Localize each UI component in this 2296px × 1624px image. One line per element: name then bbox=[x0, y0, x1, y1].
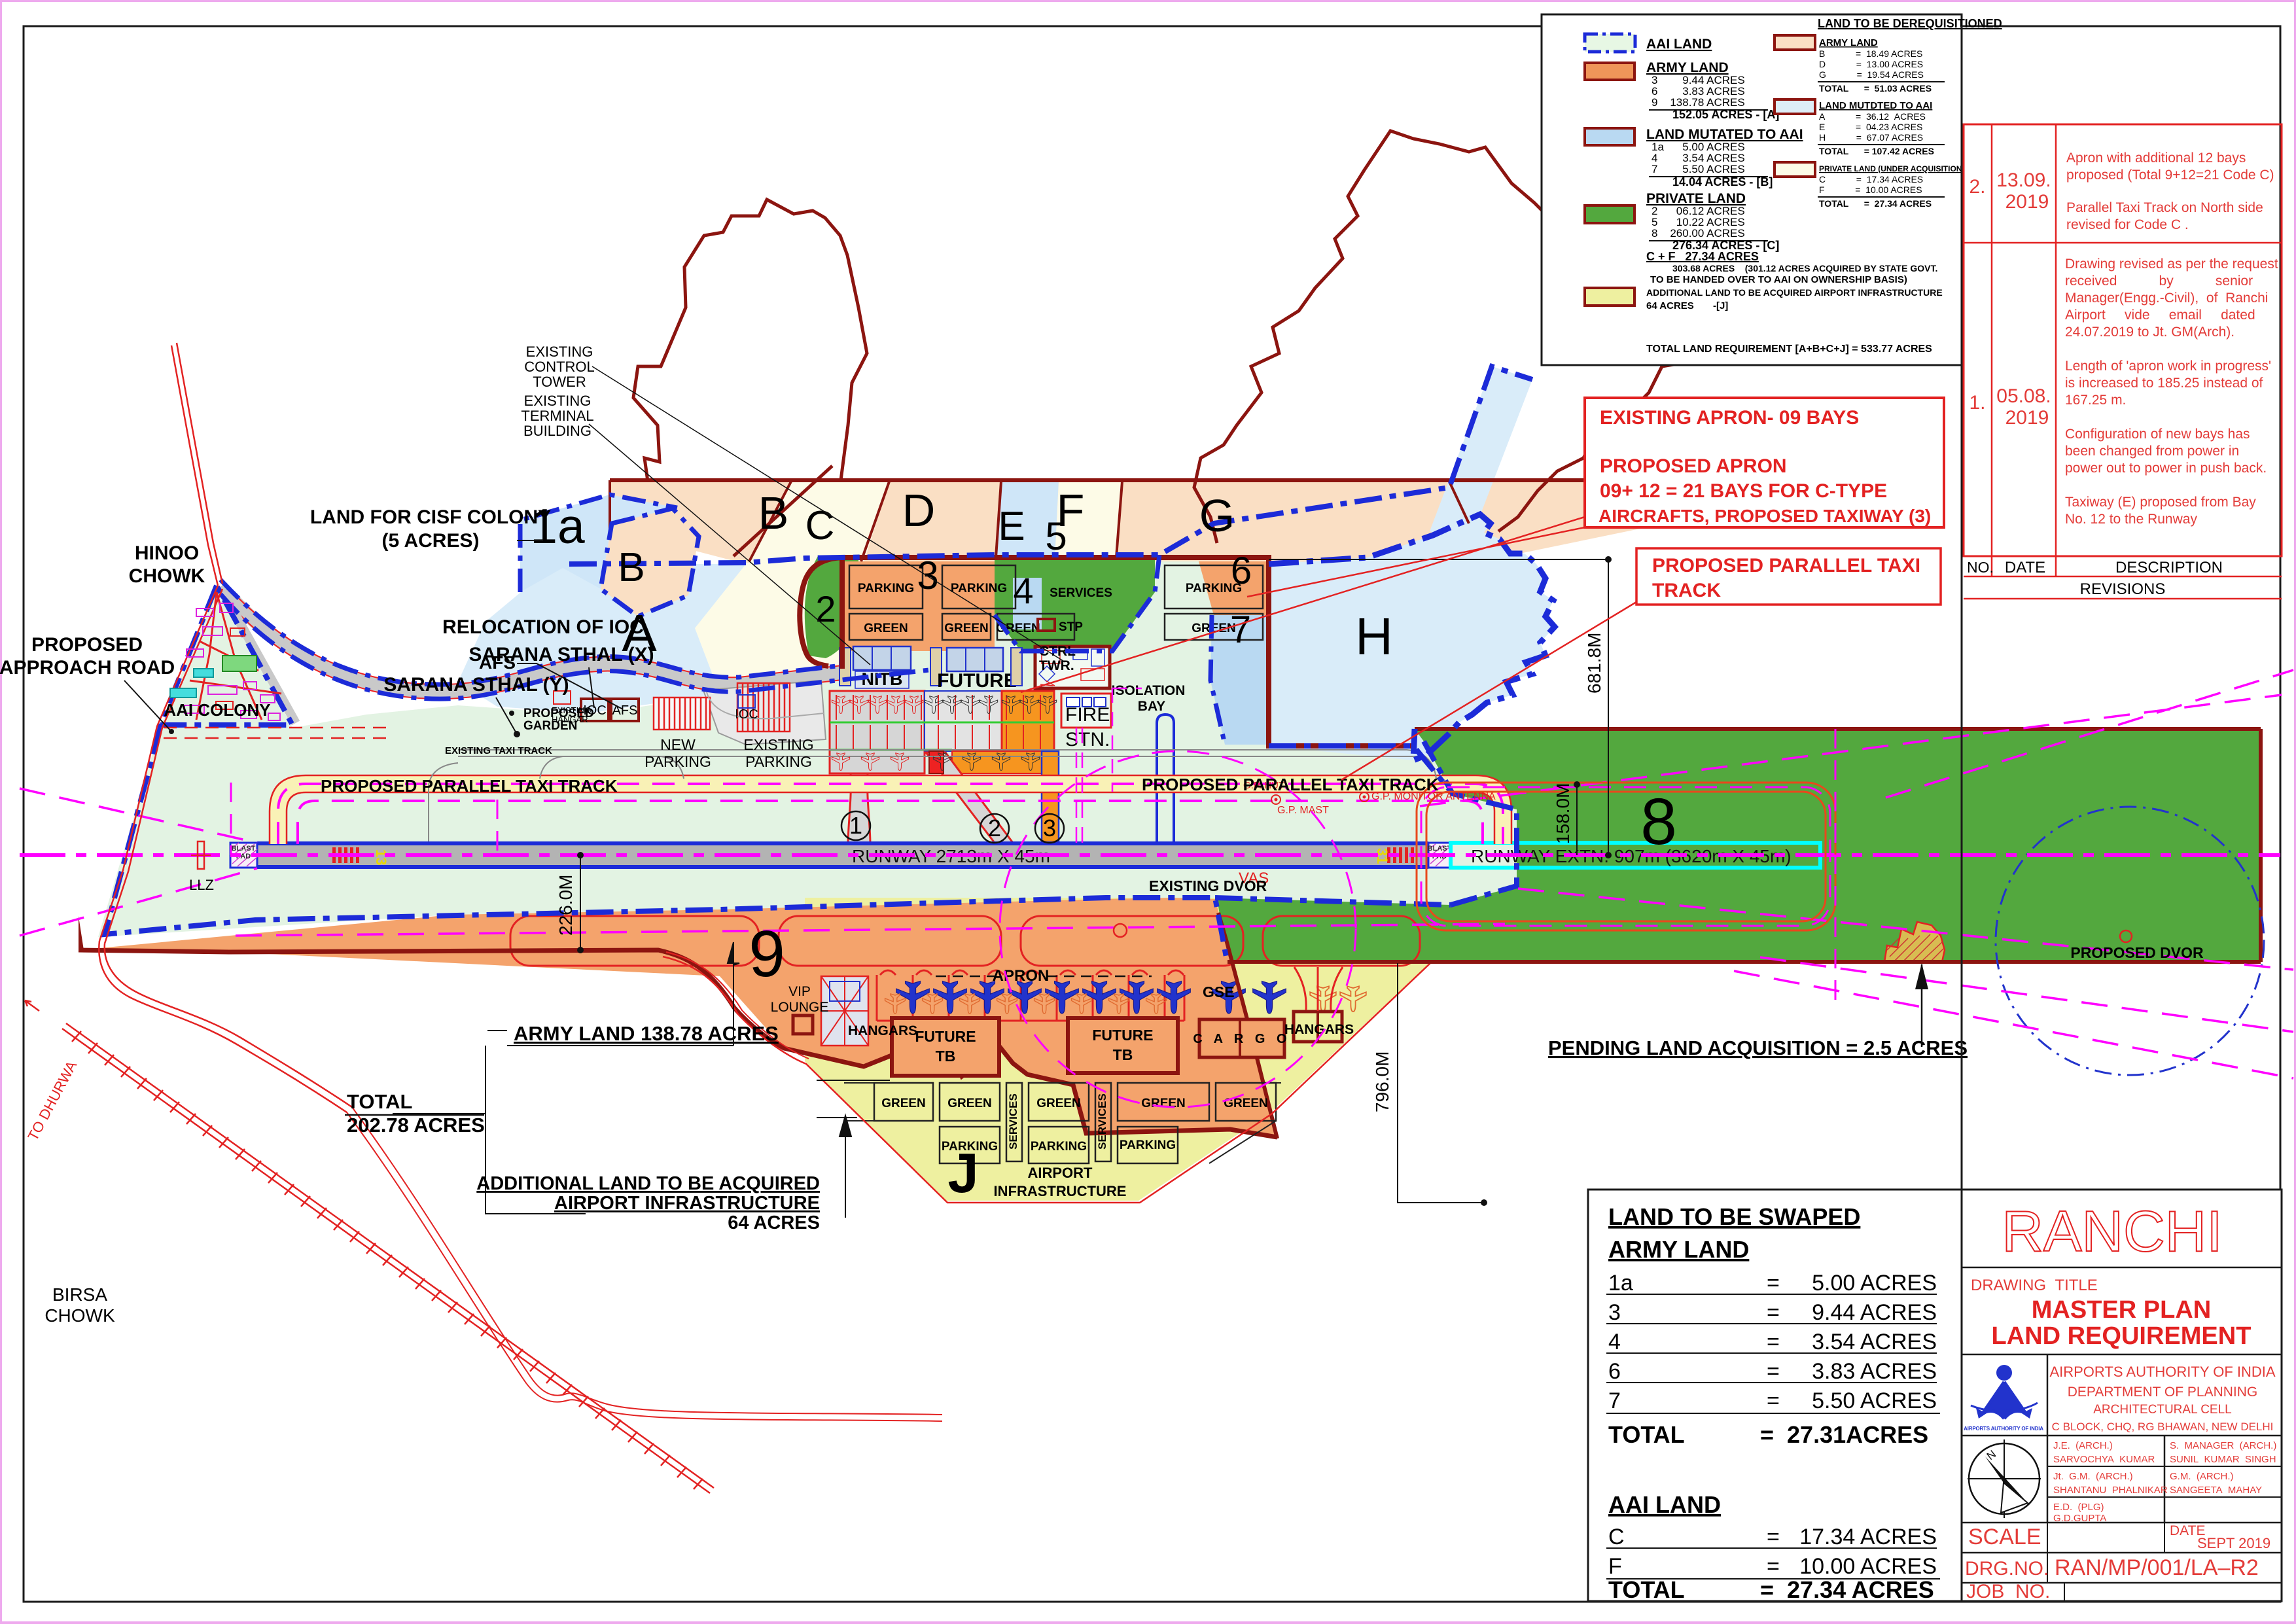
svg-text:B: B bbox=[758, 487, 789, 538]
svg-text:B = 18.49 ACRES: B = 18.49 ACRES bbox=[1819, 48, 1922, 59]
svg-text:10.00 ACRES: 10.00 ACRES bbox=[1799, 1554, 1937, 1579]
svg-text:=: = bbox=[1767, 1525, 1780, 1549]
svg-text:G.P. MAST: G.P. MAST bbox=[1277, 805, 1329, 816]
svg-text:TRACK: TRACK bbox=[1652, 580, 1721, 601]
svg-text:C: C bbox=[1608, 1525, 1625, 1549]
svg-text:152.05 ACRES - [A]: 152.05 ACRES - [A] bbox=[1672, 108, 1779, 121]
svg-text:PARKING: PARKING bbox=[858, 582, 914, 595]
svg-text:=: = bbox=[1767, 1359, 1780, 1384]
svg-text:TOTAL: TOTAL bbox=[347, 1090, 412, 1113]
svg-text:1: 1 bbox=[849, 812, 862, 839]
svg-text:is increased to 185.25 instead: is increased to 185.25 instead of bbox=[2065, 376, 2263, 391]
svg-text:FUTURE: FUTURE bbox=[937, 670, 1017, 692]
svg-text:H = 67.07 ACRES: H = 67.07 ACRES bbox=[1819, 132, 1923, 143]
svg-text:PARKING: PARKING bbox=[1120, 1139, 1176, 1152]
svg-text:3.83 ACRES: 3.83 ACRES bbox=[1812, 1359, 1937, 1384]
svg-text:PROPOSED: PROPOSED bbox=[31, 634, 143, 656]
svg-text:TOTAL = 51.03 ACRES: TOTAL = 51.03 ACRES bbox=[1819, 83, 1932, 94]
svg-text:3: 3 bbox=[1043, 815, 1056, 841]
svg-text:PROPOSED APRON: PROPOSED APRON bbox=[1600, 455, 1787, 477]
svg-text:FIRE: FIRE bbox=[1065, 704, 1110, 726]
svg-text:E = 04.23 ACRES: E = 04.23 ACRES bbox=[1819, 122, 1922, 132]
svg-text:BLAST: BLAST bbox=[1428, 845, 1452, 853]
svg-text:AIRPORTS AUTHORITY OF INDIA: AIRPORTS AUTHORITY OF INDIA bbox=[2049, 1364, 2275, 1380]
svg-text:=: = bbox=[1767, 1271, 1780, 1296]
svg-text:ARCHITECTURAL CELL: ARCHITECTURAL CELL bbox=[2093, 1403, 2232, 1417]
svg-text:5.50 ACRES: 5.50 ACRES bbox=[1812, 1388, 1937, 1413]
svg-text:9 138.78 ACRES: 9 138.78 ACRES bbox=[1651, 96, 1745, 109]
svg-text:HANGARS: HANGARS bbox=[848, 1023, 917, 1038]
svg-text:TO BE HANDED OVER TO AAI ON OW: TO BE HANDED OVER TO AAI ON OWNERSHIP BA… bbox=[1650, 274, 1907, 285]
svg-text:F: F bbox=[1608, 1554, 1622, 1579]
svg-text:HINOO: HINOO bbox=[135, 542, 199, 564]
svg-text:CONTROL: CONTROL bbox=[524, 359, 595, 375]
svg-text:LAND FOR CISF COLONY: LAND FOR CISF COLONY bbox=[310, 506, 551, 528]
svg-text:(5 ACRES): (5 ACRES) bbox=[382, 530, 480, 552]
svg-text:PARKING: PARKING bbox=[745, 753, 812, 770]
svg-text:STP: STP bbox=[1059, 620, 1083, 634]
svg-text:Taxiway (E) proposed from Bay: Taxiway (E) proposed from Bay bbox=[2065, 495, 2256, 510]
svg-text:PRIVATE LAND (UNDER ACQUISITIO: PRIVATE LAND (UNDER ACQUISITION) bbox=[1819, 164, 1964, 173]
svg-text:DATE: DATE bbox=[2005, 559, 2045, 576]
svg-text:NEW: NEW bbox=[660, 736, 696, 753]
svg-text:BAY: BAY bbox=[1138, 699, 1165, 714]
svg-text:681.8M: 681.8M bbox=[1584, 633, 1604, 694]
svg-text:CHOWK: CHOWK bbox=[129, 565, 205, 587]
svg-text:H: H bbox=[1355, 607, 1393, 665]
svg-text:been changed from power in: been changed from power in bbox=[2065, 444, 2239, 459]
svg-text:EXISTING: EXISTING bbox=[743, 736, 813, 753]
svg-text:PARKING: PARKING bbox=[645, 753, 711, 770]
svg-text:proposed (Total 9+12=21 Code C: proposed (Total 9+12=21 Code C) bbox=[2066, 168, 2274, 183]
svg-text:8: 8 bbox=[1640, 785, 1677, 858]
svg-text:= 27.31ACRES: = 27.31ACRES bbox=[1760, 1421, 1928, 1448]
svg-text:796.0M: 796.0M bbox=[1372, 1051, 1392, 1112]
svg-text:MASTER PLAN: MASTER PLAN bbox=[2032, 1296, 2211, 1324]
svg-text:C A R G O: C A R G O bbox=[1193, 1032, 1290, 1046]
svg-text:2: 2 bbox=[988, 815, 1001, 841]
svg-text:D: D bbox=[902, 485, 936, 536]
svg-text:64 ACRES -[J]: 64 ACRES -[J] bbox=[1646, 300, 1728, 311]
svg-text:DRAWING TITLE: DRAWING TITLE bbox=[1971, 1277, 2098, 1294]
svg-text:RELOCATION OF IOC: RELOCATION OF IOC bbox=[442, 616, 644, 638]
svg-text:ADDITIONAL LAND TO BE ACQUIRED: ADDITIONAL LAND TO BE ACQUIRED AIRPORT I… bbox=[1646, 287, 1943, 298]
svg-text:No. 12 to the Runway: No. 12 to the Runway bbox=[2065, 512, 2197, 527]
svg-text:DRG.NO.: DRG.NO. bbox=[1965, 1558, 2049, 1580]
svg-text:C = 17.34 ACRES: C = 17.34 ACRES bbox=[1819, 174, 1923, 185]
svg-text:HANGAR: HANGAR bbox=[552, 715, 588, 724]
svg-text:SHANTANU PHALNIKAR: SHANTANU PHALNIKAR bbox=[2053, 1485, 2168, 1496]
svg-text:2: 2 bbox=[815, 588, 836, 629]
svg-text:TOTAL = 107.42 ACRES: TOTAL = 107.42 ACRES bbox=[1819, 146, 1934, 156]
svg-text:SERVICES: SERVICES bbox=[1007, 1093, 1019, 1150]
svg-text:INFRASTRUCTURE: INFRASTRUCTURE bbox=[994, 1183, 1127, 1199]
svg-text:PROPOSED PARALLEL TAXI: PROPOSED PARALLEL TAXI bbox=[1652, 555, 1920, 576]
svg-text:APPROACH ROAD: APPROACH ROAD bbox=[0, 657, 175, 679]
svg-text:PROPOSED PARALLEL TAXI TRACK: PROPOSED PARALLEL TAXI TRACK bbox=[321, 776, 618, 796]
svg-text:7: 7 bbox=[1230, 609, 1251, 651]
svg-text:1a: 1a bbox=[1608, 1271, 1633, 1296]
svg-text:FUTURE: FUTURE bbox=[1092, 1027, 1153, 1044]
svg-text:5.00 ACRES: 5.00 ACRES bbox=[1812, 1271, 1937, 1296]
svg-text:EXISTING APRON- 09 BAYS: EXISTING APRON- 09 BAYS bbox=[1600, 407, 1859, 429]
svg-text:=: = bbox=[1767, 1554, 1780, 1579]
svg-text:RAN/MP/001/LA–R2: RAN/MP/001/LA–R2 bbox=[2055, 1555, 2259, 1580]
svg-text:AAI LAND: AAI LAND bbox=[1608, 1491, 1721, 1518]
svg-text:BUILDING: BUILDING bbox=[523, 423, 592, 439]
svg-text:SCALE: SCALE bbox=[1968, 1525, 2041, 1549]
svg-text:AAI LAND: AAI LAND bbox=[1646, 37, 1712, 52]
svg-text:SANGEETA MAHAY: SANGEETA MAHAY bbox=[2170, 1485, 2262, 1496]
svg-text:7 5.50 ACRES: 7 5.50 ACRES bbox=[1651, 163, 1745, 175]
svg-text:GREEN: GREEN bbox=[1141, 1097, 1186, 1110]
svg-text:CHOWK: CHOWK bbox=[44, 1305, 115, 1326]
svg-text:BIRSA: BIRSA bbox=[52, 1284, 107, 1305]
svg-text:=: = bbox=[1767, 1388, 1780, 1413]
svg-text:GSE: GSE bbox=[1203, 983, 1235, 1000]
svg-text:Drawing revised as per the req: Drawing revised as per the request bbox=[2065, 256, 2278, 272]
svg-text:PROPOSED DVOR: PROPOSED DVOR bbox=[2070, 944, 2204, 961]
svg-text:13.09.: 13.09. bbox=[1996, 169, 2051, 191]
svg-text:STN.: STN. bbox=[1065, 729, 1110, 750]
svg-text:AAI COLONY: AAI COLONY bbox=[164, 700, 270, 720]
svg-text:F = 10.00 ACRES: F = 10.00 ACRES bbox=[1819, 185, 1922, 195]
svg-text:3: 3 bbox=[917, 554, 938, 597]
svg-text:J: J bbox=[947, 1142, 978, 1205]
svg-text:EXISTING TAXI TRACK: EXISTING TAXI TRACK bbox=[445, 745, 552, 756]
svg-text:IOC: IOC bbox=[735, 707, 758, 722]
svg-text:SERVICES: SERVICES bbox=[1096, 1093, 1108, 1150]
svg-text:C BLOCK, CHQ, RG BHAWAN, NEW D: C BLOCK, CHQ, RG BHAWAN, NEW DELHI bbox=[2052, 1421, 2274, 1433]
svg-text:ARMY LAND: ARMY LAND bbox=[1819, 37, 1878, 48]
svg-text:202.78 ACRES: 202.78 ACRES bbox=[347, 1114, 485, 1137]
svg-text:TOTAL: TOTAL bbox=[1608, 1576, 1685, 1603]
svg-text:GREEN: GREEN bbox=[864, 622, 908, 635]
svg-text:DEPARTMENT OF PLANNING: DEPARTMENT OF PLANNING bbox=[2068, 1385, 2258, 1400]
svg-text:Length of 'apron work in progr: Length of 'apron work in progress' bbox=[2065, 359, 2271, 374]
svg-text:LAND MUTDTED TO AAI: LAND MUTDTED TO AAI bbox=[1819, 100, 1932, 111]
svg-text:AIRCRAFTS, PROPOSED TAXIWAY (3: AIRCRAFTS, PROPOSED TAXIWAY (3) bbox=[1598, 506, 1931, 526]
svg-text:PRIVATE LAND: PRIVATE LAND bbox=[1646, 191, 1746, 206]
svg-text:DESCRIPTION: DESCRIPTION bbox=[2115, 559, 2223, 576]
svg-text:TB: TB bbox=[936, 1048, 956, 1065]
svg-text:LAND MUTATED TO AAI: LAND MUTATED TO AAI bbox=[1646, 127, 1803, 142]
svg-text:8 260.00 ACRES: 8 260.00 ACRES bbox=[1651, 227, 1745, 239]
svg-text:A = 36.12 ACRES: A = 36.12 ACRES bbox=[1819, 111, 1926, 122]
svg-text:158.0M: 158.0M bbox=[1553, 783, 1573, 844]
svg-text:E: E bbox=[998, 504, 1025, 549]
svg-text:=: = bbox=[1767, 1330, 1780, 1354]
svg-text:SARANA STHAL (X): SARANA STHAL (X) bbox=[468, 644, 654, 665]
svg-text:NO.: NO. bbox=[1967, 559, 1994, 576]
svg-text:TOTAL: TOTAL bbox=[1608, 1421, 1685, 1448]
svg-text:RANCHI: RANCHI bbox=[2002, 1199, 2222, 1263]
svg-text:SUNIL KUMAR SINGH: SUNIL KUMAR SINGH bbox=[2170, 1454, 2276, 1465]
svg-text:ARMY LAND: ARMY LAND bbox=[1608, 1236, 1749, 1263]
svg-text:power out to power in push bac: power out to power in push back. bbox=[2065, 461, 2267, 476]
svg-text:Parallel Taxi Track on North s: Parallel Taxi Track on North side bbox=[2066, 200, 2263, 215]
svg-text:EXISTING DVOR: EXISTING DVOR bbox=[1149, 877, 1267, 894]
svg-text:SEPT 2019: SEPT 2019 bbox=[2197, 1535, 2270, 1551]
svg-text:TOTAL LAND REQUIREMENT [A+B+C+: TOTAL LAND REQUIREMENT [A+B+C+J] = 533.7… bbox=[1646, 344, 1932, 355]
svg-text:C + F 27.34 ACRES: C + F 27.34 ACRES bbox=[1646, 250, 1759, 263]
svg-text:5: 5 bbox=[1045, 514, 1067, 558]
svg-text:4: 4 bbox=[1608, 1330, 1621, 1354]
svg-text:PARKING: PARKING bbox=[951, 582, 1007, 595]
svg-text:2019: 2019 bbox=[2005, 407, 2049, 429]
svg-text:EXISTING: EXISTING bbox=[552, 705, 592, 715]
svg-text:BLAST: BLAST bbox=[232, 845, 256, 853]
svg-text:G: G bbox=[1199, 490, 1235, 541]
svg-text:17.34 ACRES: 17.34 ACRES bbox=[1799, 1525, 1937, 1549]
svg-text:REVISIONS: REVISIONS bbox=[2080, 580, 2166, 598]
svg-text:D = 13.00 ACRES: D = 13.00 ACRES bbox=[1819, 59, 1923, 69]
svg-text:226.0M: 226.0M bbox=[556, 875, 576, 936]
svg-text:GREEN: GREEN bbox=[881, 1097, 926, 1110]
svg-text:1.: 1. bbox=[1969, 392, 1985, 414]
svg-text:LAND TO BE DEREQUISITIONED: LAND TO BE DEREQUISITIONED bbox=[1818, 17, 2002, 30]
svg-text:2.: 2. bbox=[1969, 176, 1985, 198]
svg-text:24.07.2019 to Jt. GM(Arch).: 24.07.2019 to Jt. GM(Arch). bbox=[2065, 325, 2234, 340]
svg-text:TB: TB bbox=[1113, 1046, 1133, 1063]
svg-text:VIP: VIP bbox=[788, 984, 811, 999]
svg-text:303.68 ACRES (301.12 ACRES: 303.68 ACRES (301.12 ACRES ACQUIRED BY S… bbox=[1672, 263, 1937, 274]
svg-text:GREEN: GREEN bbox=[944, 622, 989, 635]
svg-text:C: C bbox=[805, 503, 835, 548]
svg-text:TOWER: TOWER bbox=[533, 374, 586, 390]
svg-text:ADDITIONAL LAND TO BE ACQUIRED: ADDITIONAL LAND TO BE ACQUIRED bbox=[476, 1173, 820, 1194]
svg-text:ARMY LAND 138.78 ACRES: ARMY LAND 138.78 ACRES bbox=[514, 1022, 779, 1045]
svg-text:revised for Code C .: revised for Code C . bbox=[2066, 217, 2189, 232]
svg-text:PENDING LAND ACQUISITION = 2.5: PENDING LAND ACQUISITION = 2.5 ACRES bbox=[1548, 1036, 1968, 1059]
svg-text:S. MANAGER (ARCH.): S. MANAGER (ARCH.) bbox=[2170, 1440, 2276, 1451]
svg-text:GREEN: GREEN bbox=[947, 1097, 992, 1110]
svg-text:05.08.: 05.08. bbox=[1996, 385, 2051, 407]
svg-text:SERVICES: SERVICES bbox=[1050, 586, 1112, 600]
svg-text:13: 13 bbox=[373, 849, 389, 865]
svg-text:AIRPORT: AIRPORT bbox=[1028, 1165, 1093, 1181]
svg-text:09+ 12 = 21 BAYS FOR C-TYPE: 09+ 12 = 21 BAYS FOR C-TYPE bbox=[1600, 480, 1887, 502]
svg-text:JOB NO.: JOB NO. bbox=[1966, 1581, 2050, 1602]
svg-text:E.D. (PLG): E.D. (PLG) bbox=[2053, 1502, 2104, 1513]
svg-text:EXISTING: EXISTING bbox=[526, 344, 593, 360]
svg-text:TWR.: TWR. bbox=[1039, 658, 1074, 673]
svg-text:EXISTING: EXISTING bbox=[524, 393, 592, 409]
svg-text:LAND TO BE SWAPED: LAND TO BE SWAPED bbox=[1608, 1203, 1860, 1230]
svg-text:= 27.34 ACRES: = 27.34 ACRES bbox=[1760, 1576, 1934, 1603]
svg-text:SARANA STHAL (Y): SARANA STHAL (Y) bbox=[383, 674, 569, 696]
svg-text:TERMINAL: TERMINAL bbox=[521, 408, 593, 424]
svg-text:Jt. G.M. (ARCH.): Jt. G.M. (ARCH.) bbox=[2053, 1471, 2133, 1482]
svg-text:3: 3 bbox=[1608, 1300, 1621, 1325]
svg-text:9: 9 bbox=[749, 917, 785, 991]
svg-text:Apron with additional 12 bays: Apron with additional 12 bays bbox=[2066, 150, 2246, 166]
svg-text:TOTAL = 27.34 ACRES: TOTAL = 27.34 ACRES bbox=[1819, 198, 1932, 209]
svg-text:64 ACRES: 64 ACRES bbox=[728, 1212, 820, 1233]
svg-text:3.54 ACRES: 3.54 ACRES bbox=[1812, 1330, 1937, 1354]
svg-text:=: = bbox=[1767, 1300, 1780, 1325]
svg-text:6: 6 bbox=[1231, 550, 1252, 592]
svg-text:SARVOCHYA KUMAR: SARVOCHYA KUMAR bbox=[2053, 1454, 2155, 1465]
svg-text:LOUNGE: LOUNGE bbox=[771, 1000, 829, 1015]
svg-text:FUTURE: FUTURE bbox=[915, 1028, 976, 1045]
svg-text:9.44 ACRES: 9.44 ACRES bbox=[1812, 1300, 1937, 1325]
svg-text:7: 7 bbox=[1608, 1388, 1621, 1413]
svg-text:2019: 2019 bbox=[2005, 191, 2049, 213]
svg-text:PROPOSED PARALLEL TAXI TRACK: PROPOSED PARALLEL TAXI TRACK bbox=[1142, 775, 1439, 794]
svg-text:PARKING: PARKING bbox=[1031, 1140, 1087, 1154]
svg-text:14.04 ACRES - [B]: 14.04 ACRES - [B] bbox=[1672, 175, 1773, 188]
svg-text:received by: received by senior bbox=[2065, 274, 2253, 289]
svg-text:AIRPORT INFRASTRUCTURE: AIRPORT INFRASTRUCTURE bbox=[554, 1193, 820, 1214]
svg-text:LLZ: LLZ bbox=[189, 877, 214, 893]
svg-text:AIRPORTS AUTHORITY OF INDIA: AIRPORTS AUTHORITY OF INDIA bbox=[1964, 1426, 2043, 1432]
svg-text:ISOLATION: ISOLATION bbox=[1112, 683, 1186, 698]
svg-text:4: 4 bbox=[1013, 570, 1033, 611]
svg-text:LAND REQUIREMENT: LAND REQUIREMENT bbox=[1992, 1322, 2252, 1350]
svg-text:B: B bbox=[618, 545, 645, 590]
svg-text:ARMY LAND: ARMY LAND bbox=[1646, 60, 1729, 75]
svg-text:GREEN: GREEN bbox=[1036, 1097, 1081, 1110]
svg-text:Manager(Engg.-Civil), of Ran: Manager(Engg.-Civil), of Ranchi bbox=[2065, 291, 2268, 306]
svg-text:G = 19.54 ACRES: G = 19.54 ACRES bbox=[1819, 69, 1924, 80]
svg-text:Airport vide email: Airport vide email dated bbox=[2065, 308, 2255, 323]
svg-text:G.M. (ARCH.): G.M. (ARCH.) bbox=[2170, 1471, 2234, 1482]
svg-text:167.25 m.: 167.25 m. bbox=[2065, 393, 2126, 408]
svg-text:J.E. (ARCH.): J.E. (ARCH.) bbox=[2053, 1440, 2113, 1451]
svg-text:Configuration of new bays has: Configuration of new bays has bbox=[2065, 427, 2250, 442]
svg-text:6: 6 bbox=[1608, 1359, 1621, 1384]
svg-text:HANGARS: HANGARS bbox=[1284, 1022, 1354, 1037]
